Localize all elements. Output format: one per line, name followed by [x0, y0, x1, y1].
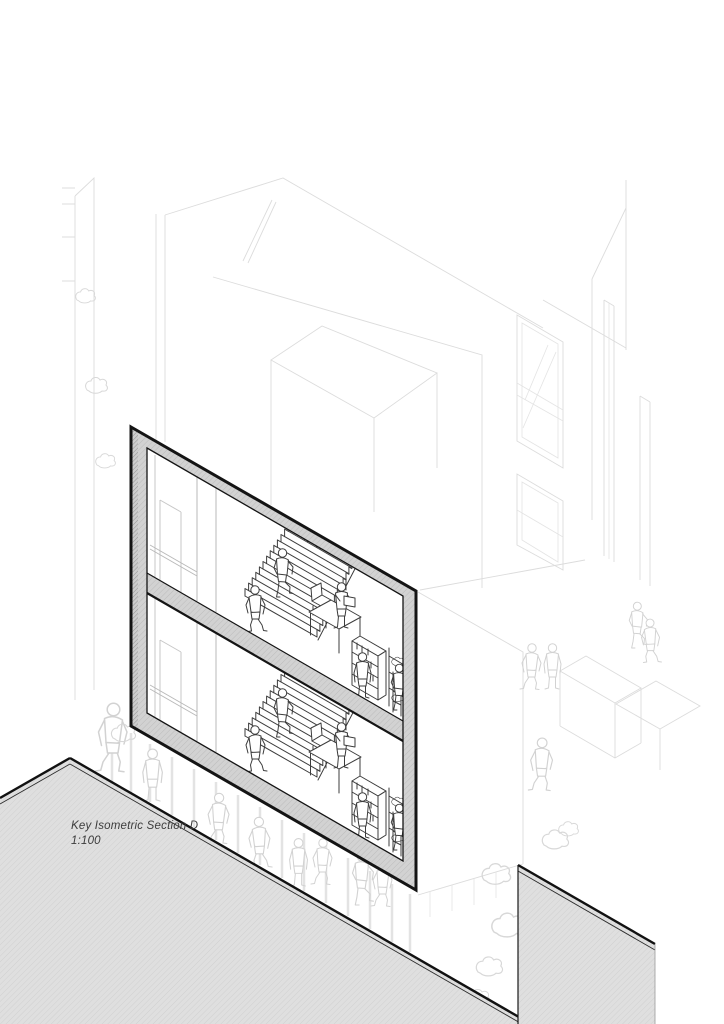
drawing-label: Key Isometric Section D 1:100	[71, 819, 198, 849]
ground-plane-right	[518, 865, 655, 1024]
isometric-section-drawing	[0, 0, 724, 1024]
rooftop-box	[271, 326, 437, 512]
planter-boxes	[560, 656, 700, 770]
drawing-scale: 1:100	[71, 834, 198, 849]
left-tower	[62, 178, 94, 700]
side-wall	[418, 560, 585, 917]
isometric-section-sheet: Key Isometric Section D 1:100	[0, 0, 724, 1024]
drawing-title: Key Isometric Section D	[71, 819, 198, 834]
right-facade-windows	[517, 300, 650, 586]
